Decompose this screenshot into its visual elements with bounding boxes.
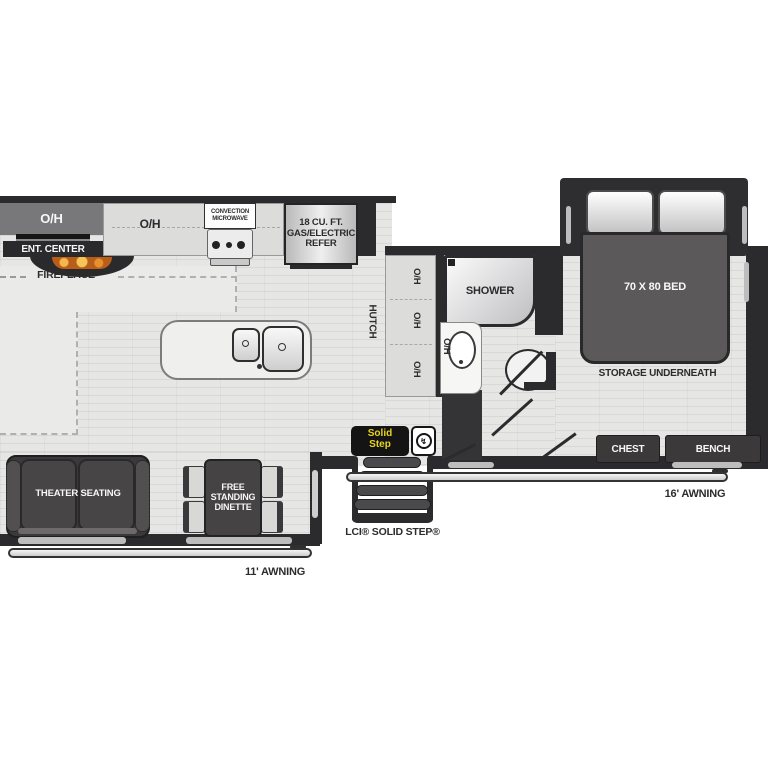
dinette-label: FREE STANDING DINETTE bbox=[207, 483, 259, 513]
sink-drain-dot bbox=[242, 340, 249, 347]
slideout-wall-window bbox=[312, 470, 318, 518]
burner-dot bbox=[226, 242, 232, 248]
dinette-chair bbox=[261, 466, 283, 498]
entry-step bbox=[356, 485, 428, 496]
burner-dot bbox=[237, 241, 245, 249]
storage-label: STORAGE UNDERNEATH bbox=[585, 368, 730, 379]
hutch-label: HUTCH bbox=[367, 302, 378, 342]
solid-step-brand-top: Solid bbox=[351, 429, 409, 440]
sofa-front-edge bbox=[18, 528, 137, 534]
dinette-table: FREE STANDING DINETTE bbox=[204, 459, 262, 537]
kitchen-overhead-cabinet: O/H bbox=[0, 203, 103, 235]
entry-step bbox=[354, 499, 431, 510]
slide-window bbox=[566, 206, 571, 244]
hutch-overhead-label: O/H bbox=[411, 302, 421, 338]
chest-label: CHEST bbox=[612, 444, 645, 455]
awning-11 bbox=[8, 548, 312, 558]
skid bbox=[672, 462, 742, 468]
hutch-overhead-label: O/H bbox=[411, 258, 421, 294]
skid bbox=[448, 462, 494, 468]
fireplace-flames-icon bbox=[52, 257, 112, 269]
hutch-dashed-divider bbox=[390, 299, 432, 300]
dashed-line-segment bbox=[118, 276, 237, 278]
chest: CHEST bbox=[596, 435, 660, 463]
solid-step-brand-bottom: Step bbox=[351, 440, 409, 451]
entertainment-center: ENT. CENTER bbox=[3, 241, 103, 257]
entertainment-center-label: ENT. CENTER bbox=[21, 244, 84, 255]
burner-dot bbox=[212, 241, 220, 249]
theater-seating-label: THEATER SEATING bbox=[8, 489, 148, 499]
lci-icon: ↯ bbox=[416, 433, 432, 449]
skid bbox=[186, 537, 292, 544]
dinette-chair bbox=[183, 501, 205, 533]
entry-step-base bbox=[352, 513, 433, 523]
bed-mattress: 70 X 80 BED bbox=[580, 232, 730, 364]
refrigerator-base bbox=[290, 265, 352, 269]
dinette-chair bbox=[183, 466, 205, 498]
oven-handle bbox=[210, 258, 250, 266]
hutch-overhead-label: O/H bbox=[411, 351, 421, 387]
slide-window bbox=[742, 206, 747, 244]
shower: SHOWER bbox=[444, 255, 536, 327]
fireplace-label: FIREPLACE bbox=[16, 270, 116, 282]
awning-16 bbox=[346, 472, 728, 482]
bath-sink-overhead-label: O/H bbox=[441, 328, 451, 364]
bath-faucet-dot bbox=[459, 360, 463, 364]
tv-bar bbox=[16, 234, 90, 241]
pillow bbox=[658, 190, 726, 235]
awning-16-label: 16' AWNING bbox=[640, 488, 750, 500]
hutch-dashed-divider bbox=[390, 344, 432, 345]
microwave-label: CONVECTION MICROWAVE bbox=[207, 209, 253, 222]
top-wall bbox=[0, 196, 396, 203]
skid bbox=[18, 537, 126, 544]
lci-badge: ↯ bbox=[411, 426, 436, 456]
kitchen-right-wall bbox=[358, 203, 376, 256]
dinette-chair bbox=[261, 501, 283, 533]
toilet-wall-horizontal bbox=[524, 382, 556, 390]
bench-label: BENCH bbox=[696, 444, 731, 455]
rv-floor-plan: O/H ENT. CENTER FIREPLACE O/H CONVECTION… bbox=[0, 0, 768, 768]
bottom-wall-mid bbox=[320, 456, 354, 469]
overhead-cabinet-label: O/H bbox=[40, 212, 63, 226]
sink-drain-dot bbox=[278, 343, 286, 351]
faucet-dot bbox=[257, 364, 262, 369]
solid-step-label: LCI® SOLID STEP® bbox=[330, 527, 455, 539]
pillow bbox=[586, 190, 654, 235]
refrigerator: 18 CU. FT. GAS/ELECTRIC REFER bbox=[284, 203, 358, 265]
shower-right-wall bbox=[535, 250, 563, 335]
right-wall-window bbox=[744, 262, 749, 302]
awning-11-label: 11' AWNING bbox=[225, 566, 325, 578]
convection-microwave: CONVECTION MICROWAVE bbox=[204, 203, 256, 229]
solid-step-badge: Solid Step bbox=[351, 426, 409, 456]
shower-head-icon bbox=[448, 259, 455, 266]
refrigerator-label: 18 CU. FT. GAS/ELECTRIC REFER bbox=[286, 218, 356, 249]
bed-label: 70 X 80 BED bbox=[583, 281, 727, 293]
dashed-slide-outline-lower bbox=[0, 312, 78, 435]
entry-step bbox=[363, 457, 421, 468]
counter-overhead-label: O/H bbox=[130, 218, 170, 231]
bench: BENCH bbox=[665, 435, 761, 463]
shower-label: SHOWER bbox=[466, 285, 514, 297]
lci-mark: ↯ bbox=[420, 437, 427, 446]
